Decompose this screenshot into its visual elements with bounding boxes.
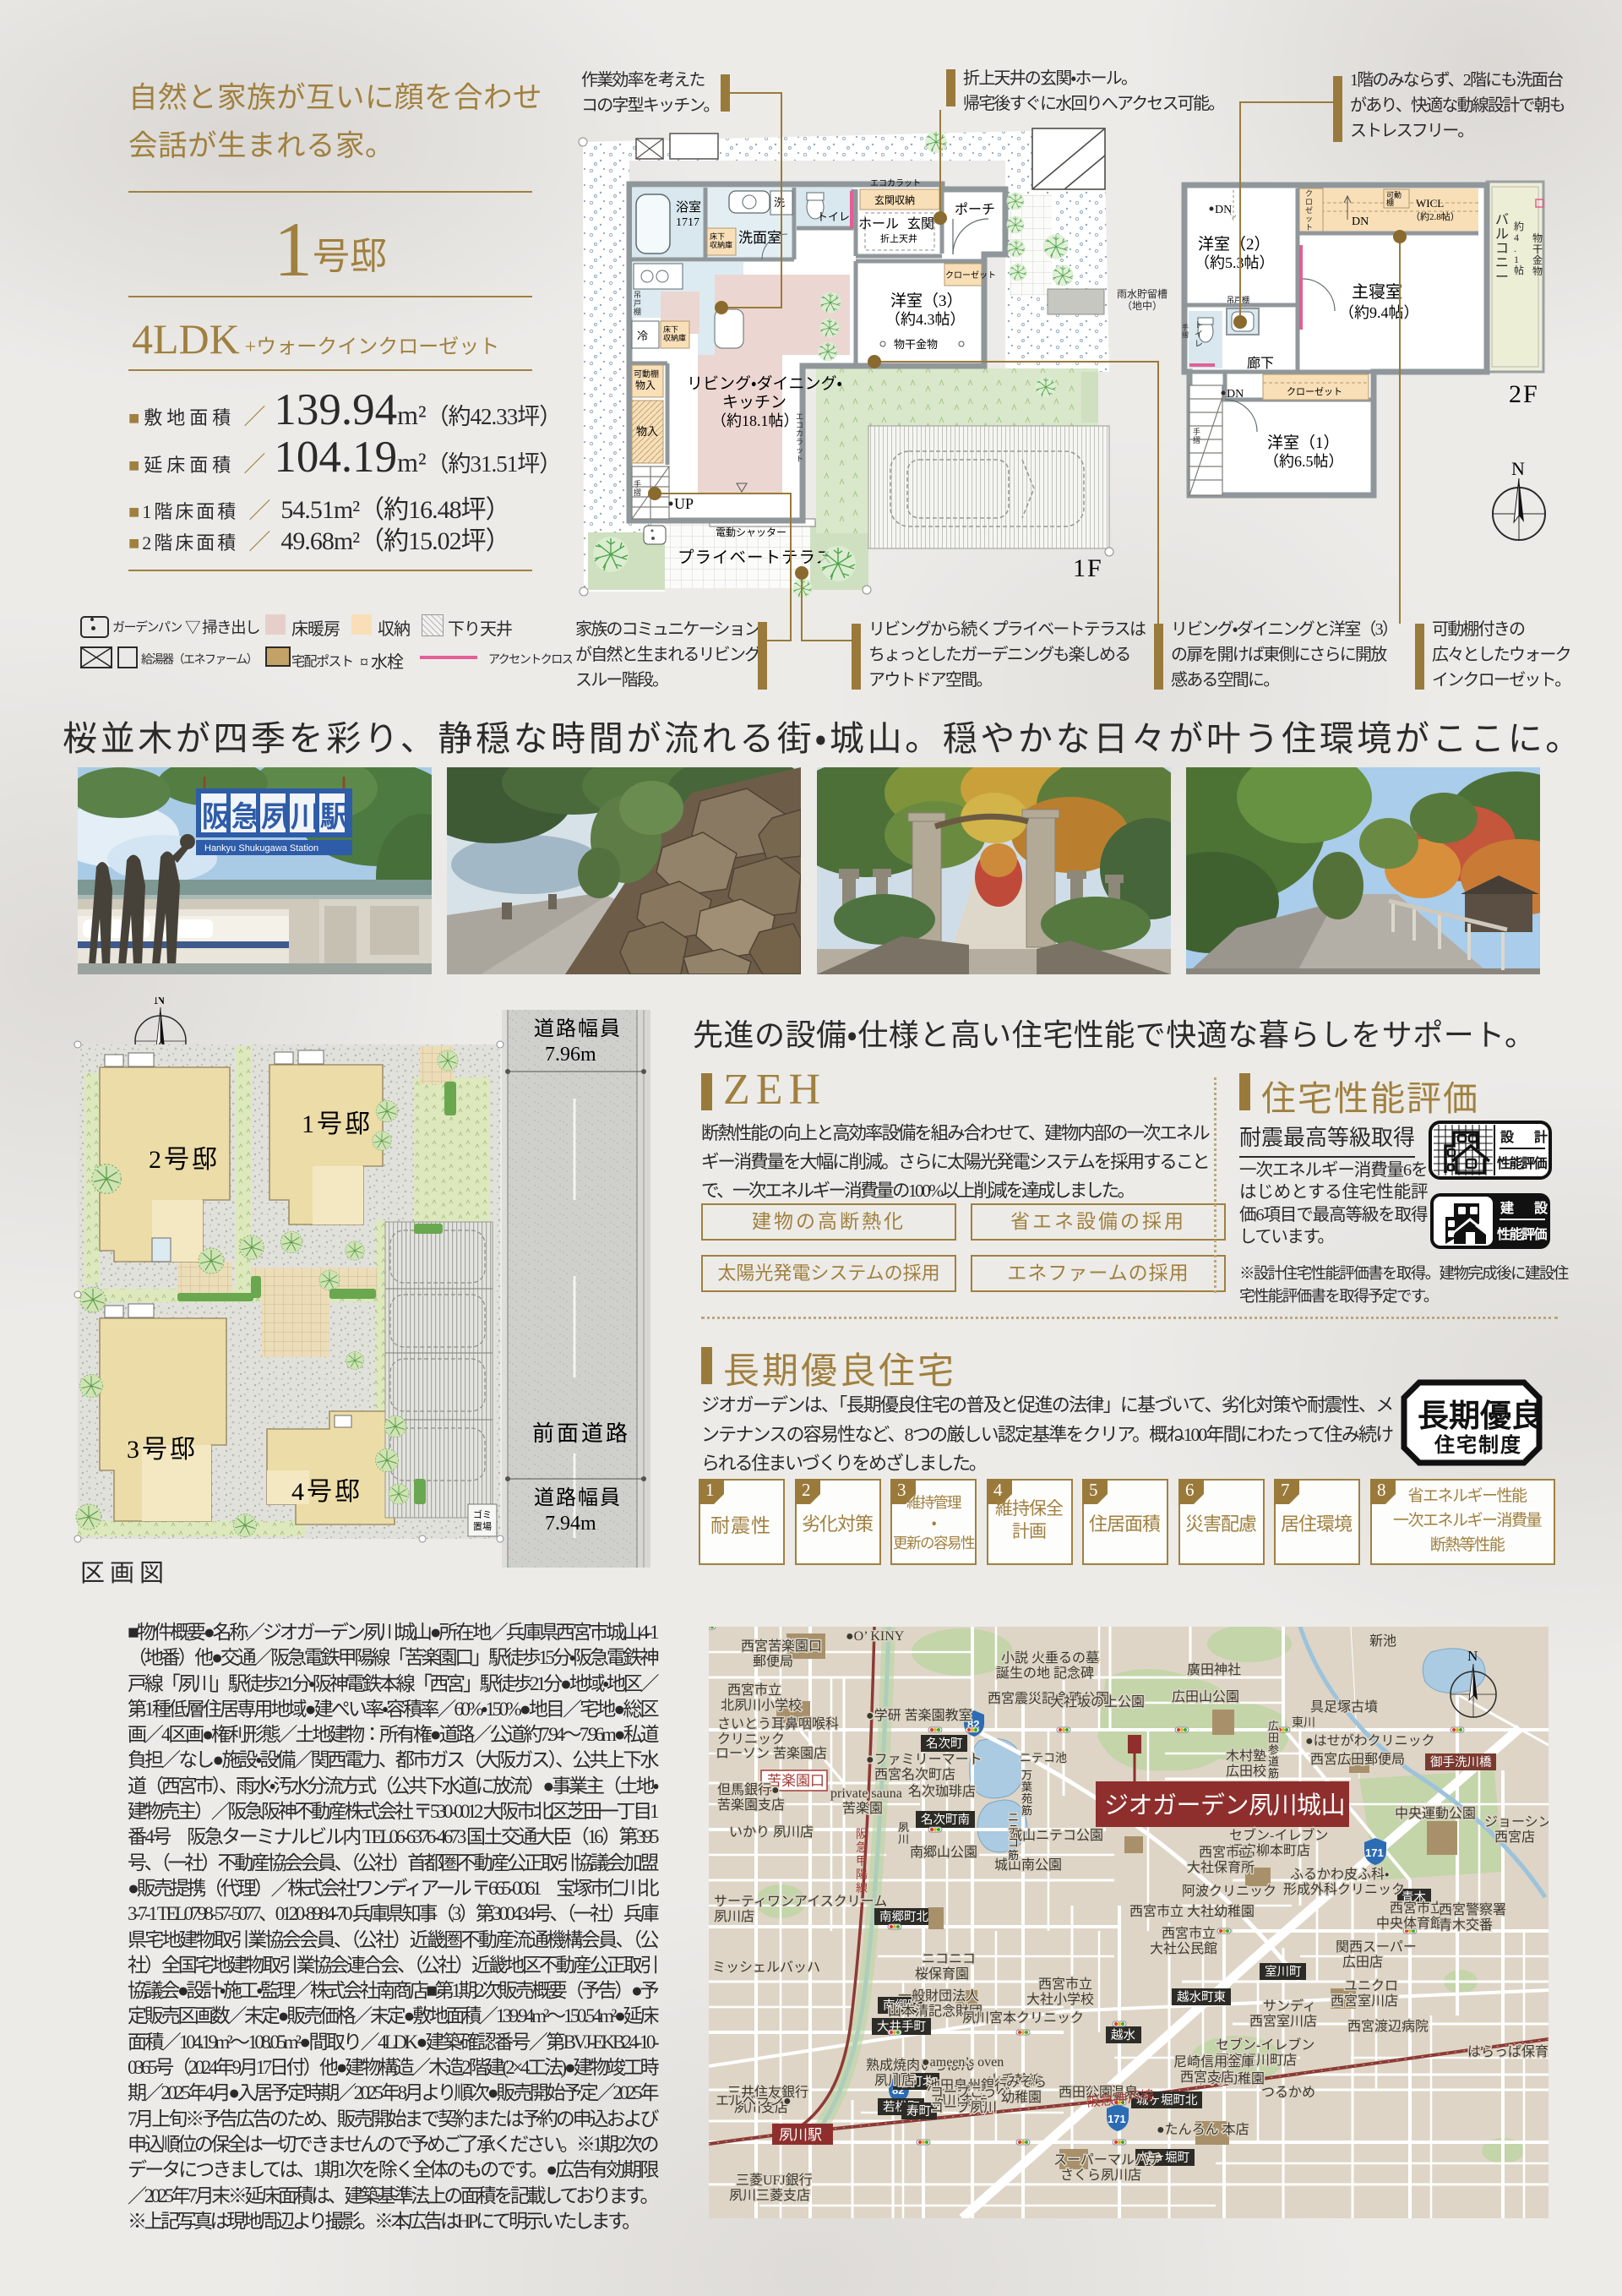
svg-text:吊戸棚: 吊戸棚 (634, 291, 641, 316)
svg-text:DN: DN (1227, 388, 1244, 401)
svg-text:ユニクロ: ユニクロ (1344, 1978, 1398, 1993)
svg-text:（約5.3帖）: （約5.3帖） (1195, 254, 1275, 271)
svg-text:4号邸: 4号邸 (291, 1478, 362, 1506)
svg-text:さくら夙川店: さくら夙川店 (1060, 2168, 1141, 2183)
svg-text:ローソン 苦楽園店: ローソン 苦楽園店 (716, 1746, 827, 1761)
svg-text:夙川三菱支店: 夙川三菱支店 (729, 2188, 810, 2203)
svg-text:関西スーパー: 関西スーパー (1336, 1940, 1417, 1955)
svg-text:エルベラン●: エルベラン● (716, 2094, 792, 2108)
svg-text:ポーチ: ポーチ (955, 202, 995, 217)
svg-text:川: 川 (291, 801, 319, 833)
svg-text:西宮市立: 西宮市立 (1038, 1977, 1092, 1992)
svg-text:ミッシェルバッハ: ミッシェルバッハ (712, 1961, 820, 1975)
svg-text:ニコニコ: ニコニコ (922, 1952, 976, 1966)
svg-text:プライベートテラス: プライベートテラス (678, 548, 833, 567)
svg-text:●学研 苦楽園教室: ●学研 苦楽園教室 (866, 1708, 972, 1723)
svg-text:手摺: 手摺 (1182, 323, 1189, 339)
svg-text:クロゼット: クロゼット (1305, 189, 1313, 232)
svg-text:西宮渡辺病院: 西宮渡辺病院 (1347, 2019, 1429, 2034)
svg-text:住宅制度: 住宅制度 (1434, 1433, 1522, 1457)
svg-text:幼稚園: 幼稚園 (1001, 2090, 1042, 2105)
svg-text:ジオガーデン夙川城山: ジオガーデン夙川城山 (1104, 1792, 1345, 1819)
svg-text:洋室（2）: 洋室（2） (1198, 235, 1271, 254)
svg-text:（約4.3帖）: （約4.3帖） (885, 311, 966, 328)
svg-text:7.94m: 7.94m (545, 1513, 596, 1535)
svg-text:3号邸: 3号邸 (127, 1436, 198, 1464)
svg-text:西宮店: 西宮店 (1494, 1830, 1535, 1845)
svg-text:手摺: 手摺 (1193, 427, 1200, 444)
svg-text:広田校: 広田校 (1226, 1764, 1266, 1779)
svg-text:雨水貯留槽: 雨水貯留槽 (1117, 288, 1168, 300)
svg-text:Hankyu Shukugawa Station: Hankyu Shukugawa Station (204, 843, 318, 854)
svg-text:●O’ KINY: ●O’ KINY (846, 1629, 905, 1644)
svg-text:苦楽園: 苦楽園 (842, 1801, 883, 1816)
svg-text:広田参道筋: 広田参道筋 (1268, 1720, 1279, 1780)
svg-text:電動シャッター: 電動シャッター (716, 526, 787, 538)
svg-text:西宮市立: 西宮市立 (1162, 1926, 1216, 1941)
svg-text:西宮支店: 西宮支店 (1180, 2070, 1234, 2085)
svg-text:ジョーシン: ジョーシン (1484, 1815, 1549, 1830)
svg-text:ホール: ホール (858, 217, 899, 232)
svg-text:急: 急 (231, 801, 260, 833)
svg-text:西宮警察署: 西宮警察署 (1439, 1902, 1506, 1917)
svg-text:1717: 1717 (676, 216, 699, 229)
svg-text:西宮広田郵便局: 西宮広田郵便局 (1310, 1752, 1405, 1767)
svg-text:洋室（1）: 洋室（1） (1267, 434, 1340, 452)
svg-text:（地中）: （地中） (1122, 299, 1162, 312)
svg-text:一般財団法人: 一般財団法人 (898, 1988, 979, 2004)
svg-text:広田店: 広田店 (1342, 1955, 1383, 1970)
svg-text:DN: DN (1215, 204, 1232, 216)
svg-text:廊下: 廊下 (1247, 356, 1274, 371)
svg-text:夙川店: 夙川店 (874, 2073, 915, 2088)
svg-text:（約2.8帖）: （約2.8帖） (1411, 210, 1460, 222)
svg-text:主寝室: 主寝室 (1352, 282, 1402, 302)
svg-text:収納庫: 収納庫 (663, 333, 686, 342)
svg-text:新池: 新池 (1369, 1633, 1396, 1649)
svg-text:洗: 洗 (774, 196, 785, 209)
svg-text:但馬銀行●: 但馬銀行● (717, 1782, 780, 1797)
svg-text:郵便局: 郵便局 (753, 1654, 793, 1669)
svg-text:収納庫: 収納庫 (710, 240, 732, 249)
svg-text:物干金物: 物干金物 (1532, 232, 1543, 277)
svg-text:（約9.4帖）: （約9.4帖） (1339, 304, 1419, 321)
svg-text:建 設: 建 設 (1500, 1201, 1552, 1216)
svg-text:阿波クリニック: 阿波クリニック (1182, 1884, 1276, 1899)
svg-text:万葉苑筋: 万葉苑筋 (1021, 1769, 1032, 1817)
svg-text:西宮苦楽園口: 西宮苦楽園口 (741, 1639, 822, 1654)
svg-text:N: N (1467, 1648, 1478, 1664)
svg-text:設 計: 設 計 (1500, 1129, 1552, 1145)
svg-text:バルコニー: バルコニー (1495, 213, 1509, 285)
svg-text:名次町: 名次町 (926, 1737, 963, 1751)
svg-text:1号邸: 1号邸 (302, 1110, 373, 1138)
svg-text:廣田神社: 廣田神社 (1187, 1662, 1241, 1677)
svg-text:西宮室川店: 西宮室川店 (1249, 2014, 1317, 2029)
svg-text:コープ夙川: コープ夙川 (930, 2100, 997, 2115)
svg-text:みそら: みそら (1006, 2075, 1047, 2090)
svg-text:南郷山公園: 南郷山公園 (910, 1845, 977, 1860)
svg-text:誕生の地 記念碑: 誕生の地 記念碑 (996, 1666, 1094, 1681)
svg-text:大社公民館: 大社公民館 (1150, 1941, 1217, 1956)
svg-text:西宮市立 大社幼稚園: 西宮市立 大社幼稚園 (1129, 1904, 1255, 1919)
svg-text:ニテコ筋: ニテコ筋 (1008, 1811, 1019, 1862)
svg-text:床下: 床下 (710, 232, 725, 241)
svg-text:室川町: 室川町 (1265, 1965, 1302, 1979)
svg-text:前面道路: 前面道路 (532, 1421, 630, 1446)
svg-text:越水町東: 越水町東 (1177, 1990, 1226, 2004)
svg-text:形成外科クリニック: 形成外科クリニック (1283, 1882, 1405, 1897)
svg-text:折上天井: 折上天井 (880, 232, 917, 244)
svg-text:床下: 床下 (663, 325, 678, 334)
svg-text:夙川: 夙川 (898, 1821, 909, 1846)
svg-text:1F: 1F (1073, 554, 1103, 582)
svg-text:洗面室: 洗面室 (738, 230, 781, 246)
svg-text:桜保育園: 桜保育園 (915, 1966, 969, 1982)
svg-text:大社小学校: 大社小学校 (1026, 1992, 1094, 2007)
svg-text:リビング・ダイニング・: リビング・ダイニング・ (687, 374, 842, 393)
svg-text:ふるかわ皮ふ科・: ふるかわ皮ふ科・ (1290, 1867, 1389, 1882)
svg-text:苦楽園支店: 苦楽園支店 (717, 1797, 785, 1813)
svg-text:171: 171 (1108, 2113, 1126, 2125)
svg-text:エコカラット: エコカラット (796, 412, 803, 463)
svg-text:N: N (154, 997, 166, 1008)
svg-text:2F: 2F (1509, 380, 1539, 408)
svg-text:城山南公園: 城山南公園 (994, 1857, 1062, 1873)
svg-text:中央体育館: 中央体育館 (1376, 1916, 1444, 1931)
svg-text:越水: 越水 (1111, 2028, 1135, 2042)
svg-text:青木交番: 青木交番 (1439, 1917, 1493, 1933)
svg-text:トイレ: トイレ (817, 210, 850, 223)
svg-text:（約18.1帖）: （約18.1帖） (711, 412, 799, 429)
svg-text:セブン-イレブン: セブン-イレブン (1216, 2037, 1314, 2053)
svg-text:物入: 物入 (635, 379, 656, 391)
svg-text:N: N (1511, 458, 1525, 479)
svg-text:WICL: WICL (1416, 197, 1444, 210)
svg-text:尼崎信用金庫: 尼崎信用金庫 (1173, 2054, 1255, 2070)
svg-text:いかり 夙川店: いかり 夙川店 (729, 1824, 814, 1840)
svg-text:クローゼット: クローゼット (1287, 386, 1342, 397)
svg-text:クリニック: クリニック (717, 1732, 785, 1747)
svg-text:●ファミリーマート: ●ファミリーマート (866, 1753, 982, 1767)
svg-text:夙: 夙 (261, 801, 290, 833)
svg-text:玄関収納: 玄関収納 (874, 194, 915, 206)
svg-text:東川: 東川 (1292, 1716, 1315, 1730)
svg-text:性能評価: 性能評価 (1497, 1155, 1548, 1171)
svg-text:御手洗川橋: 御手洗川橋 (1430, 1755, 1492, 1770)
svg-text:夙川駅: 夙川駅 (779, 2127, 822, 2143)
svg-text:はらっぱ保育所: はらっぱ保育所 (1467, 2044, 1549, 2059)
svg-text:洋室（3）: 洋室（3） (890, 292, 963, 310)
svg-text:三菱UFJ銀行: 三菱UFJ銀行 (736, 2173, 813, 2188)
svg-text:●ameen’s oven: ●ameen’s oven (922, 2055, 1004, 2070)
svg-text:寿町: 寿町 (906, 2104, 931, 2119)
svg-text:private sauna: private sauna (830, 1786, 902, 1801)
svg-text:駅: 駅 (320, 801, 349, 833)
svg-text:2号邸: 2号邸 (149, 1146, 220, 1174)
svg-text:道路幅員: 道路幅員 (534, 1486, 622, 1509)
svg-text:名次町南: 名次町南 (921, 1813, 970, 1827)
svg-text:つるかめ: つるかめ (1261, 2086, 1315, 2100)
svg-text:冷: 冷 (637, 330, 648, 342)
svg-text:サンディ: サンディ (1263, 1998, 1316, 2014)
svg-text:小説 火垂るの墓: 小説 火垂るの墓 (1001, 1650, 1099, 1666)
svg-text:阪急甲陽線: 阪急甲陽線 (856, 1828, 868, 1895)
svg-text:夙川宮本クリニック: 夙川宮本クリニック (962, 2010, 1084, 2026)
svg-text:玄関: 玄関 (907, 216, 934, 232)
svg-text:エコカラット: エコカラット (870, 178, 921, 188)
svg-text:吊戸棚: 吊戸棚 (1227, 295, 1249, 304)
svg-text:名次珈琲店: 名次珈琲店 (908, 1784, 976, 1799)
svg-text:スーパーマルハチ: スーパーマルハチ (1053, 2153, 1162, 2168)
svg-text:浴室: 浴室 (676, 200, 701, 215)
svg-text:171: 171 (1365, 1846, 1384, 1859)
svg-text:コープこうべ: コープこうべ (930, 2085, 1010, 2100)
svg-text:西宮室川店: 西宮室川店 (1331, 1993, 1398, 2009)
svg-text:西宮市立: 西宮市立 (1390, 1901, 1444, 1916)
svg-text:大社坂の上公園: 大社坂の上公園 (1050, 1694, 1145, 1710)
svg-text:●はせがわクリニック: ●はせがわクリニック (1305, 1733, 1435, 1748)
svg-text:ゴミ: ゴミ (473, 1508, 492, 1520)
svg-text:可動棚: 可動棚 (634, 368, 659, 379)
svg-text:クローゼット: クローゼット (945, 270, 996, 281)
svg-text:大社保育所: 大社保育所 (1187, 1860, 1255, 1875)
svg-text:阪: 阪 (202, 801, 231, 833)
svg-text:サーティワンアイスクリーム: サーティワンアイスクリーム (714, 1894, 887, 1909)
svg-text:性能評価: 性能評価 (1497, 1226, 1548, 1242)
svg-text:西宮市立: 西宮市立 (727, 1682, 781, 1698)
svg-text:夙川店: 夙川店 (714, 1909, 754, 1924)
svg-text:物入: 物入 (636, 425, 658, 438)
svg-text:キッチン: キッチン (722, 394, 787, 412)
svg-text:南郷町北: 南郷町北 (879, 1910, 928, 1924)
svg-text:具足塚古墳: 具足塚古墳 (1310, 1699, 1378, 1715)
svg-text:手摺: 手摺 (634, 479, 641, 497)
svg-text:城山ニテコ公園: 城山ニテコ公園 (1009, 1828, 1103, 1843)
svg-text:西宮名次町店: 西宮名次町店 (874, 1767, 955, 1782)
svg-text:ニテコ池: ニテコ池 (1020, 1752, 1067, 1765)
svg-text:●たんろん 本店: ●たんろん 本店 (1157, 2122, 1249, 2137)
svg-text:置場: 置場 (473, 1521, 492, 1532)
svg-text:7.96m: 7.96m (545, 1044, 596, 1066)
svg-text:（約6.5帖）: （約6.5帖） (1264, 453, 1344, 470)
svg-text:木村塾: 木村塾 (1226, 1748, 1266, 1764)
svg-text:北夙川小学校: 北夙川小学校 (721, 1698, 802, 1713)
svg-text:中央運動公園: 中央運動公園 (1395, 1806, 1476, 1821)
svg-text:セブン-イレブン: セブン-イレブン (1229, 1827, 1328, 1843)
svg-text:物干金物: 物干金物 (894, 338, 938, 351)
svg-text:長期優良: 長期優良 (1418, 1399, 1543, 1434)
svg-text:棚: 棚 (1386, 198, 1394, 207)
svg-text:DN: DN (1352, 215, 1369, 228)
svg-text:広田山公園: 広田山公園 (1172, 1689, 1239, 1704)
svg-text:西宮市立: 西宮市立 (1199, 1845, 1253, 1860)
svg-text:道路幅員: 道路幅員 (534, 1017, 622, 1040)
svg-text:さいとう耳鼻咽喉科: さいとう耳鼻咽喉科 (717, 1716, 839, 1732)
svg-text:UP: UP (674, 495, 694, 512)
svg-text:トイレ: トイレ (1195, 321, 1203, 349)
